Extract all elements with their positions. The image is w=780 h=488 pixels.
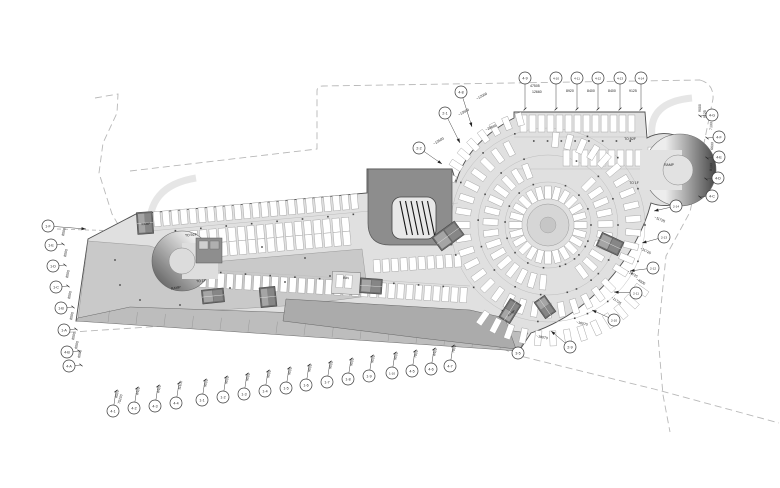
column-dot bbox=[114, 259, 116, 261]
dimension-label: 8000 bbox=[69, 312, 75, 320]
dimension-label: 8000 bbox=[61, 228, 67, 236]
svg-text:4-13: 4-13 bbox=[617, 76, 623, 80]
column-dot bbox=[559, 266, 561, 268]
column-dot bbox=[574, 317, 576, 319]
parking-stall bbox=[341, 195, 349, 211]
dimension-label: ~11725 bbox=[654, 215, 666, 223]
parking-stall bbox=[406, 284, 414, 299]
column-dot bbox=[540, 294, 542, 296]
column-dot bbox=[565, 263, 567, 265]
parking-stall bbox=[424, 285, 432, 300]
parking-stall bbox=[451, 287, 459, 302]
parking-stall bbox=[556, 115, 563, 132]
column-dot bbox=[284, 281, 286, 283]
grid-bubble-1-D: 1-D bbox=[47, 260, 67, 272]
svg-text:1-A: 1-A bbox=[61, 328, 67, 332]
column-dot bbox=[598, 273, 600, 275]
parking-stall bbox=[244, 275, 252, 290]
dimension-label: 8400 bbox=[608, 89, 616, 93]
parking-stall bbox=[298, 278, 306, 293]
grid-bubble-2-13: 2-13 bbox=[642, 231, 670, 244]
grid-bubble-4-9: 4-9 bbox=[519, 72, 531, 110]
svg-text:2-11: 2-11 bbox=[633, 291, 639, 295]
dimension-label: 8000 bbox=[65, 270, 71, 278]
dimension-label: 9000 bbox=[393, 352, 399, 361]
parking-stall bbox=[382, 259, 390, 272]
parking-stall bbox=[285, 222, 293, 237]
dimension-label: 6000 bbox=[77, 350, 83, 358]
parking-stall bbox=[267, 238, 275, 253]
label-ramp: RAMP bbox=[141, 222, 150, 227]
column-dot bbox=[565, 185, 567, 187]
column-dot bbox=[590, 279, 592, 281]
column-dot bbox=[477, 219, 479, 221]
parking-stall bbox=[275, 223, 283, 238]
dimension-label: 9125 bbox=[703, 110, 707, 118]
parking-stall bbox=[248, 239, 256, 254]
grid-bubble-1-E: 1-E bbox=[45, 239, 65, 251]
parking-stall bbox=[305, 198, 313, 214]
svg-text:4-9: 4-9 bbox=[522, 76, 527, 80]
svg-text:4-4: 4-4 bbox=[173, 401, 178, 405]
parking-stall bbox=[373, 259, 381, 272]
column-dot bbox=[587, 208, 589, 210]
parking-stall bbox=[563, 150, 570, 166]
svg-text:4-11: 4-11 bbox=[574, 76, 580, 80]
parking-stall bbox=[343, 231, 351, 246]
parking-stall bbox=[316, 279, 324, 294]
parking-stall bbox=[235, 274, 243, 289]
parking-stall bbox=[574, 222, 587, 228]
parking-stall bbox=[574, 115, 581, 132]
parking-stall bbox=[545, 186, 551, 199]
column-dot bbox=[617, 224, 619, 226]
dimension-label: 8400 bbox=[135, 387, 141, 396]
bin-stall bbox=[336, 274, 344, 287]
column-dot bbox=[587, 240, 589, 242]
dimension-label: 47505 bbox=[530, 84, 540, 88]
svg-text:4-5: 4-5 bbox=[409, 369, 414, 373]
svg-text:4-D: 4-D bbox=[715, 176, 721, 180]
svg-text:2-2: 2-2 bbox=[416, 146, 421, 150]
parking-stall bbox=[226, 274, 234, 289]
parking-stall bbox=[626, 150, 633, 166]
dimension-label: ~13500 bbox=[433, 136, 445, 145]
column-dot bbox=[484, 194, 486, 196]
parking-stall bbox=[303, 220, 311, 235]
dimension-label: 9000 bbox=[370, 355, 376, 364]
column-dot bbox=[576, 288, 578, 290]
grid-bubble-2-2: 2-2 bbox=[413, 142, 443, 165]
parking-stall bbox=[626, 215, 641, 222]
parking-stall bbox=[270, 201, 278, 217]
parking-stall bbox=[276, 237, 284, 252]
column-dot bbox=[494, 269, 496, 271]
dimension-label: ~11725 bbox=[640, 246, 652, 255]
parking-stall bbox=[153, 211, 161, 227]
column-dot bbox=[578, 194, 580, 196]
parking-stall bbox=[529, 115, 536, 132]
column-dot bbox=[543, 267, 545, 269]
grid-bubble-4-14: 4-14 bbox=[635, 72, 647, 110]
dimension-label: ~13500 bbox=[458, 108, 470, 117]
column-dot bbox=[574, 258, 576, 260]
svg-text:2-14: 2-14 bbox=[673, 204, 679, 208]
dimension-label: 9000 bbox=[203, 379, 209, 388]
ramp-left-inner bbox=[169, 248, 195, 274]
parking-stall bbox=[228, 227, 236, 242]
svg-text:1-F: 1-F bbox=[45, 224, 51, 228]
column-dot bbox=[482, 152, 484, 154]
parking-stall bbox=[341, 217, 349, 232]
dimension-label: 9000 bbox=[349, 358, 355, 367]
svg-text:1-6: 1-6 bbox=[303, 383, 308, 387]
label-to-1f: TO 1F bbox=[196, 279, 206, 284]
column-dot bbox=[251, 223, 253, 225]
column-dot bbox=[500, 172, 502, 174]
parking-stall bbox=[610, 115, 617, 132]
bin-room bbox=[331, 271, 360, 294]
fan-island-core bbox=[540, 217, 556, 233]
parking-stall bbox=[397, 284, 405, 299]
parking-stall bbox=[592, 115, 599, 132]
site-line-east bbox=[658, 80, 713, 432]
parking-stall bbox=[590, 320, 602, 336]
label-to-b2f: TO B2F bbox=[624, 137, 636, 141]
parking-stall bbox=[314, 197, 322, 213]
column-dot bbox=[566, 291, 568, 293]
ramp-right-inner bbox=[663, 155, 693, 185]
svg-text:4-B: 4-B bbox=[64, 350, 70, 354]
svg-text:2-9: 2-9 bbox=[567, 345, 572, 349]
parking-stall bbox=[314, 234, 322, 249]
parking-stall bbox=[409, 257, 417, 270]
column-dot bbox=[514, 286, 516, 288]
svg-text:2-12: 2-12 bbox=[650, 266, 656, 270]
parking-stall bbox=[539, 275, 547, 291]
parking-stall bbox=[238, 240, 246, 255]
svg-text:1-C: 1-C bbox=[53, 285, 59, 289]
dimension-label: ~11725 bbox=[610, 296, 622, 306]
dimension-label: 8920 bbox=[566, 89, 574, 93]
parking-stall bbox=[225, 205, 233, 221]
column-dot bbox=[532, 184, 534, 186]
dimension-label: 8000 bbox=[67, 291, 73, 299]
parking-stall bbox=[313, 220, 321, 235]
column-dot bbox=[612, 198, 614, 200]
column-dot bbox=[261, 246, 263, 248]
parking-stall bbox=[433, 286, 441, 301]
svg-text:4-E: 4-E bbox=[716, 155, 722, 159]
parking-stall bbox=[261, 202, 269, 218]
svg-text:4-6: 4-6 bbox=[428, 367, 433, 371]
parking-stall bbox=[234, 204, 242, 220]
column-dot bbox=[617, 157, 619, 159]
grid-bubble-4-13: 4-13 bbox=[614, 72, 626, 110]
column-dot bbox=[608, 259, 610, 261]
parking-stall bbox=[418, 256, 426, 269]
column-dot bbox=[576, 160, 578, 162]
svg-text:4-3: 4-3 bbox=[152, 404, 157, 408]
dimension-label: 9000 bbox=[307, 364, 313, 373]
dimension-label: 6000 bbox=[74, 341, 80, 349]
dimension-label: 11100 bbox=[177, 380, 183, 390]
dimension-label: 9000 bbox=[698, 104, 702, 112]
column-dot bbox=[523, 158, 525, 160]
label-bin: BIN bbox=[343, 276, 349, 280]
column-dot bbox=[602, 140, 604, 142]
column-dot bbox=[418, 284, 420, 286]
parking-stall bbox=[583, 115, 590, 132]
svg-text:1-D: 1-D bbox=[50, 264, 56, 268]
parking-stall bbox=[400, 258, 408, 271]
parking-stall bbox=[286, 236, 294, 251]
parking-stall bbox=[216, 206, 224, 222]
parking-stall bbox=[180, 209, 188, 225]
dimension-label: 9000 bbox=[328, 361, 334, 370]
parking-stall bbox=[601, 115, 608, 132]
column-dot bbox=[139, 299, 141, 301]
parking-stall bbox=[257, 238, 265, 253]
column-dot bbox=[598, 176, 600, 178]
dimension-label: 7800 bbox=[451, 345, 457, 354]
parking-stall bbox=[295, 235, 303, 250]
parking-stall bbox=[207, 207, 215, 223]
floor-plan: RAMPTO B2FRAMPTO 1FBINTO B2FTO 1FRAMPRAM… bbox=[0, 0, 780, 488]
column-dot bbox=[473, 287, 475, 289]
parking-stall bbox=[189, 208, 197, 224]
column-dot bbox=[442, 286, 444, 288]
grid-bubble-4-10: 4-10 bbox=[550, 72, 562, 110]
column-dot bbox=[294, 276, 296, 278]
parking-stall bbox=[483, 218, 498, 225]
label-ramp: RAMP bbox=[664, 163, 675, 167]
dimension-label: 7100 bbox=[709, 122, 713, 130]
svg-text:2-10: 2-10 bbox=[611, 318, 617, 322]
column-dot bbox=[561, 140, 563, 142]
parking-stall bbox=[294, 221, 302, 236]
parking-stall bbox=[509, 222, 522, 228]
column-dot bbox=[574, 140, 576, 142]
column-dot bbox=[637, 261, 639, 263]
grid-bubble-4-8: 4-8 bbox=[455, 86, 473, 127]
column-dot bbox=[514, 133, 516, 135]
parking-stall bbox=[442, 286, 450, 301]
dimension-label: 8100 bbox=[709, 163, 713, 171]
column-dot bbox=[245, 273, 247, 275]
column-dot bbox=[276, 221, 278, 223]
parking-stall bbox=[332, 195, 340, 211]
column-dot bbox=[119, 284, 121, 286]
svg-text:4-F: 4-F bbox=[716, 135, 722, 139]
dimension-label: 9000 bbox=[266, 370, 272, 379]
svg-text:2-13: 2-13 bbox=[661, 235, 667, 239]
column-dot bbox=[179, 304, 181, 306]
parking-stall bbox=[538, 115, 545, 132]
column-dot bbox=[533, 140, 535, 142]
column-dot bbox=[460, 182, 462, 184]
floor-plan-canvas: RAMPTO B2FRAMPTO 1FBINTO B2FTO 1FRAMPRAM… bbox=[0, 0, 780, 488]
parking-stall bbox=[552, 132, 560, 148]
svg-text:3-5: 3-5 bbox=[515, 351, 520, 355]
column-dot bbox=[590, 224, 592, 226]
parking-stall bbox=[247, 225, 255, 240]
parking-stall bbox=[619, 115, 626, 132]
svg-text:2-1: 2-1 bbox=[442, 111, 447, 115]
parking-stall bbox=[427, 256, 435, 269]
column-dot bbox=[327, 216, 329, 218]
column-dot bbox=[175, 230, 177, 232]
grid-bubble-1-C: 1-C bbox=[50, 281, 70, 293]
parking-stall bbox=[388, 283, 396, 298]
parking-stall bbox=[628, 115, 635, 132]
dimension-label: 9000 bbox=[287, 367, 293, 376]
column-dot bbox=[537, 321, 539, 323]
svg-text:1-7: 1-7 bbox=[324, 380, 329, 384]
column-dot bbox=[547, 140, 549, 142]
parking-stall bbox=[565, 115, 572, 132]
svg-text:4-7: 4-7 bbox=[447, 364, 452, 368]
column-dot bbox=[220, 272, 222, 274]
ramp-left-core-cab bbox=[210, 241, 219, 249]
parking-stall bbox=[243, 203, 251, 219]
dimension-label: 8400 bbox=[156, 385, 162, 394]
dimension-label: 7800 bbox=[413, 350, 419, 359]
column-dot bbox=[607, 301, 609, 303]
svg-text:1-5: 1-5 bbox=[283, 386, 288, 390]
parking-stall bbox=[547, 115, 554, 132]
parking-stall bbox=[332, 218, 340, 233]
column-dot bbox=[353, 214, 355, 216]
svg-text:4-14: 4-14 bbox=[638, 76, 644, 80]
column-dot bbox=[481, 246, 483, 248]
parking-stall bbox=[252, 203, 260, 219]
svg-text:4-10: 4-10 bbox=[553, 76, 559, 80]
dimension-label: ~12000 bbox=[476, 92, 488, 101]
parking-stall bbox=[625, 229, 641, 237]
stair-core bbox=[201, 288, 224, 304]
svg-text:1-2: 1-2 bbox=[220, 395, 225, 399]
svg-text:4-12: 4-12 bbox=[595, 76, 601, 80]
column-dot bbox=[616, 140, 618, 142]
svg-text:1-10: 1-10 bbox=[389, 371, 395, 375]
parking-stall bbox=[279, 200, 287, 216]
svg-text:1-1: 1-1 bbox=[199, 398, 204, 402]
parking-stall bbox=[288, 199, 296, 215]
svg-text:1-4: 1-4 bbox=[262, 389, 267, 393]
column-dot bbox=[229, 287, 231, 289]
svg-text:1-B: 1-B bbox=[58, 306, 64, 310]
parking-stall bbox=[229, 241, 237, 256]
svg-text:4-G: 4-G bbox=[709, 113, 715, 117]
dimension-label: 8400 bbox=[432, 348, 438, 357]
svg-text:1-9: 1-9 bbox=[366, 374, 371, 378]
parking-stall bbox=[297, 199, 305, 215]
parking-stall bbox=[598, 221, 613, 228]
stair-core bbox=[360, 278, 383, 294]
road-right bbox=[652, 98, 692, 137]
dimension-label: 9125 bbox=[629, 89, 637, 93]
parking-stall bbox=[322, 219, 330, 234]
column-dot bbox=[393, 283, 395, 285]
dimension-label: 9000 bbox=[224, 376, 230, 385]
column-dot bbox=[225, 225, 227, 227]
column-dot bbox=[527, 262, 529, 264]
parking-stall bbox=[256, 225, 264, 240]
parking-stall bbox=[436, 255, 444, 268]
svg-text:4-C: 4-C bbox=[709, 194, 715, 198]
column-dot bbox=[455, 254, 457, 256]
parking-stall bbox=[577, 325, 588, 341]
parking-stall bbox=[445, 254, 453, 267]
column-dot bbox=[587, 136, 589, 138]
svg-text:1-3: 1-3 bbox=[241, 392, 246, 396]
column-dot bbox=[509, 205, 511, 207]
dimension-label: 12660 bbox=[532, 90, 542, 94]
parking-stall bbox=[162, 211, 170, 227]
column-dot bbox=[518, 192, 520, 194]
column-dot bbox=[637, 188, 639, 190]
svg-text:4-2: 4-2 bbox=[131, 406, 136, 410]
column-dot bbox=[587, 313, 589, 315]
dimension-label: 8000 bbox=[71, 332, 77, 340]
column-dot bbox=[578, 254, 580, 256]
column-dot bbox=[514, 252, 516, 254]
parking-stall bbox=[305, 234, 313, 249]
parking-stall bbox=[333, 232, 341, 247]
ramp-left-core-cab bbox=[199, 241, 208, 249]
grid-bubble-4-A: 4-A bbox=[63, 360, 83, 372]
stair-core bbox=[259, 286, 277, 308]
svg-text:1-E: 1-E bbox=[48, 243, 54, 247]
column-dot bbox=[200, 228, 202, 230]
parking-stall bbox=[171, 210, 179, 226]
dimension-label: 8400 bbox=[587, 89, 595, 93]
column-dot bbox=[504, 221, 506, 223]
column-dot bbox=[329, 275, 331, 277]
column-dot bbox=[302, 218, 304, 220]
parking-stall bbox=[391, 258, 399, 271]
parking-stall bbox=[289, 277, 297, 292]
parking-stall bbox=[324, 233, 332, 248]
column-dot bbox=[506, 237, 508, 239]
parking-stall bbox=[280, 277, 288, 292]
parking-stall bbox=[323, 196, 331, 212]
dimension-label: 9000 bbox=[245, 373, 251, 382]
parking-stall bbox=[545, 251, 551, 264]
grid-bubble-3-5: 3-5 bbox=[512, 347, 524, 359]
parking-stall bbox=[307, 278, 315, 293]
parking-stall bbox=[266, 224, 274, 239]
dimension-label: 6600 bbox=[710, 142, 714, 150]
column-dot bbox=[584, 246, 586, 248]
column-dot bbox=[319, 278, 321, 280]
parking-stall bbox=[350, 194, 358, 210]
column-dot bbox=[644, 224, 646, 226]
parking-stall bbox=[415, 285, 423, 300]
label-to-1f: TO 1F bbox=[629, 181, 639, 185]
dimension-label: 8000 bbox=[63, 249, 69, 257]
svg-text:4-A: 4-A bbox=[66, 364, 72, 368]
parking-stall bbox=[237, 226, 245, 241]
parking-stall bbox=[460, 287, 468, 302]
grid-bubble-4-F: 4-F bbox=[705, 131, 725, 143]
parking-stall bbox=[217, 273, 225, 288]
svg-text:4-8: 4-8 bbox=[458, 90, 463, 94]
svg-text:4-1: 4-1 bbox=[110, 409, 115, 413]
svg-text:1-8: 1-8 bbox=[345, 377, 350, 381]
column-dot bbox=[269, 275, 271, 277]
